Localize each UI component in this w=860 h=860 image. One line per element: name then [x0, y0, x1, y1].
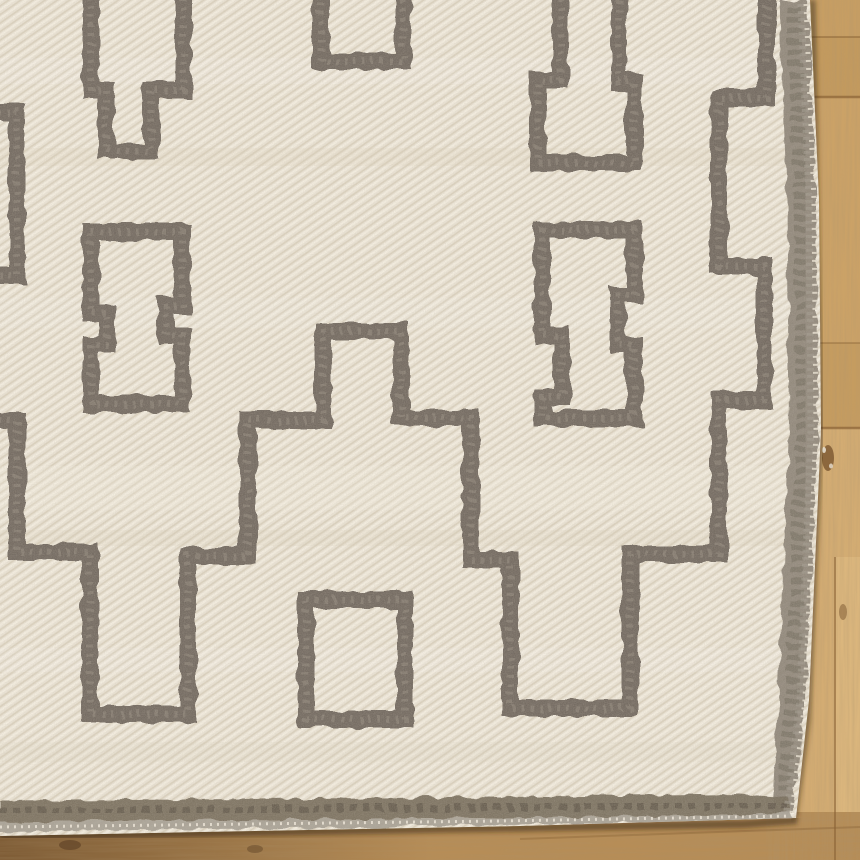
wood-knot-speck: [829, 464, 833, 469]
wood-knot: [247, 845, 263, 853]
photo-rug-on-wood-floor: [0, 0, 860, 860]
kilim-rug: [0, 0, 860, 860]
rug-photo-canvas: [0, 0, 860, 860]
wood-knot: [839, 604, 847, 620]
rug-texture-layer: [0, 0, 860, 860]
wood-knot: [59, 840, 81, 850]
rug-speckle-texture: [0, 0, 860, 860]
